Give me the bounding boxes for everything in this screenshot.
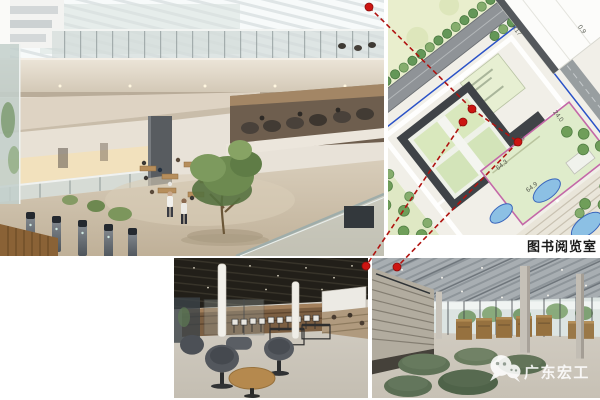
watermark-text: 广东宏工 (524, 363, 590, 381)
collage-canvas: R17 24.0 64.6 64.3 64.9 0.9 图书阅览室 主 (0, 0, 600, 400)
site-plan-art: R17 24.0 64.6 64.3 64.9 0.9 (388, 0, 600, 235)
left-glass-wall (0, 44, 21, 204)
plan-caption: 图书阅览室 (450, 236, 597, 255)
reading-photo-art: 广东宏工 (372, 258, 600, 398)
lounge-photo (174, 258, 368, 398)
site-plan: R17 24.0 64.6 64.3 64.9 0.9 (388, 0, 600, 235)
plan-rotated-content: R17 24.0 64.6 64.3 64.9 0.9 (388, 0, 600, 235)
reading-photo: 广东宏工 (372, 258, 600, 398)
atrium-photo-art (0, 0, 384, 256)
atrium-photo (0, 0, 384, 256)
lounge-photo-art (174, 258, 368, 398)
